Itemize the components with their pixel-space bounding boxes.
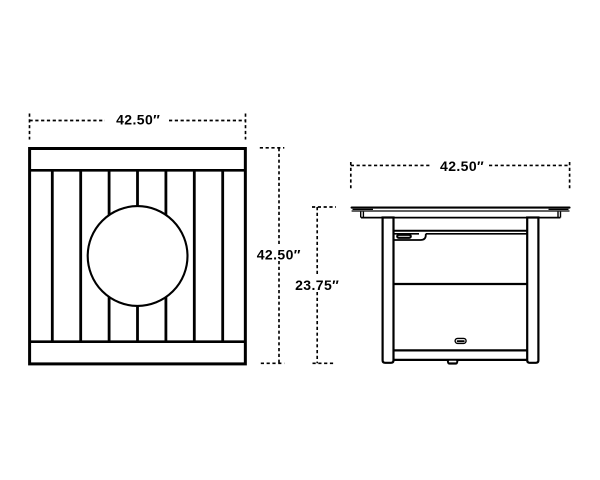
- svg-text:42.50″: 42.50″: [116, 111, 160, 127]
- svg-text:42.50″: 42.50″: [440, 158, 484, 174]
- svg-text:23.75″: 23.75″: [295, 277, 339, 293]
- svg-text:42.50″: 42.50″: [257, 246, 301, 262]
